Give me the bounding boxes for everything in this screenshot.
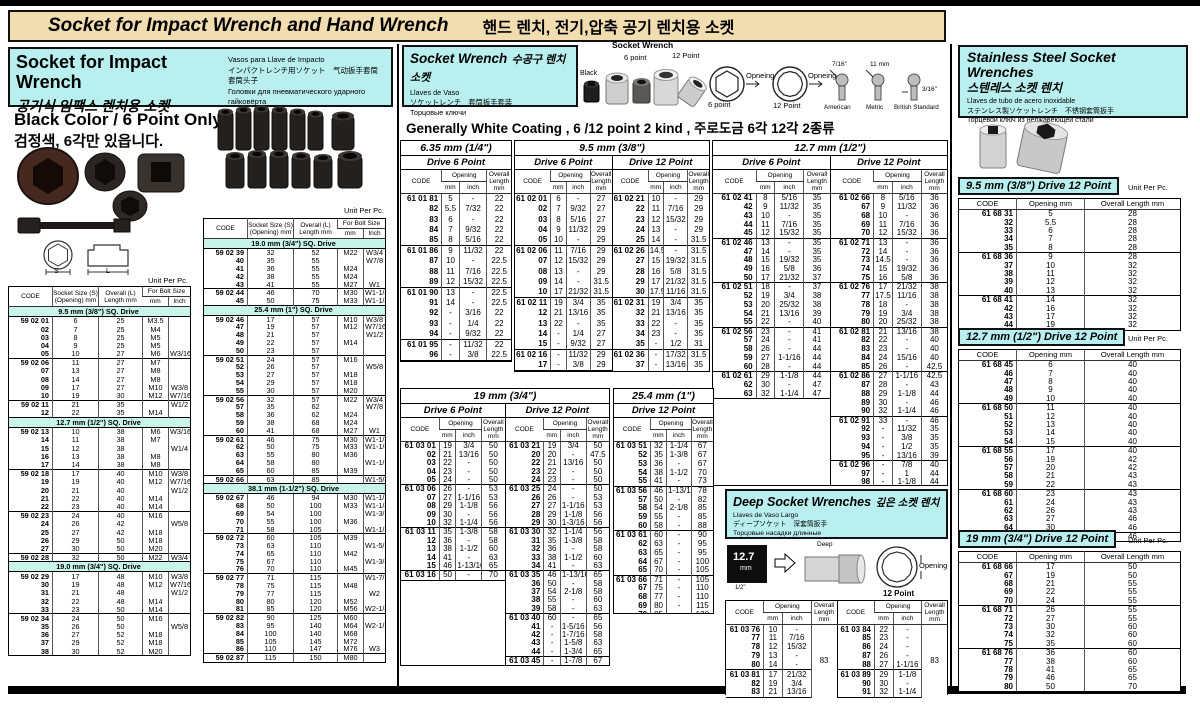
divider-middle-right (950, 44, 952, 686)
cell: 59 02 82 (204, 614, 248, 622)
cell: - (648, 360, 663, 370)
table-row: 59 02 8290125M60 (204, 614, 386, 622)
table-row: 61 02 6685/1636 (831, 194, 948, 203)
table-row: 325.528 (959, 219, 1181, 227)
table-row: 59 02 232440M16 (9, 511, 191, 519)
cell: 43 (506, 639, 544, 647)
cell: 5/16 (566, 215, 590, 225)
cell: M76 (338, 645, 364, 653)
cell: 110 (294, 558, 338, 566)
cell: 61 03 76 (726, 625, 764, 634)
table-row: 10321-1/456 (401, 519, 505, 528)
table-row: 743260 (959, 631, 1181, 639)
cell: 44 (713, 221, 756, 230)
cell: 61 02 61 (713, 372, 756, 381)
cell: 22 (551, 319, 566, 329)
cell: 34 (959, 235, 1017, 243)
cell: 15/32 (566, 256, 590, 266)
cell: 61 03 56 (614, 486, 651, 495)
cell: 22.5 (487, 298, 511, 308)
cell: 73 (691, 477, 713, 486)
cell: - (666, 558, 691, 567)
cell: 40 (1085, 395, 1181, 404)
cell: 59 (713, 354, 756, 363)
cell: 9 (551, 225, 566, 235)
table-row: 0914-31.5 (515, 277, 612, 287)
cell: W1-7/8 (364, 574, 386, 582)
cell: 58 (248, 526, 294, 534)
table-row: 352650W5/8 (9, 622, 191, 630)
cell: 15/32 (664, 215, 688, 225)
cell: 52 (99, 631, 143, 639)
cell: 30 (874, 398, 893, 407)
cell: 97 (831, 470, 874, 479)
cell: 12 (648, 215, 663, 225)
cell: 45 (713, 229, 756, 238)
cell (338, 542, 364, 550)
cell: 22 (487, 235, 511, 245)
art-316-label: 3/16" (922, 86, 937, 93)
unit-per-pc-left1: Unit Per Pc. (120, 276, 188, 285)
cell: 38 (921, 310, 947, 319)
cell: 35 (804, 212, 830, 221)
cell: 84 (401, 225, 442, 235)
cell: 13 (401, 545, 439, 553)
cell: 11/32 (566, 350, 590, 360)
cell: 15/32 (892, 229, 921, 238)
cell: 38 (921, 327, 947, 336)
cell: 29 (688, 204, 709, 214)
cell: 21 (756, 310, 775, 319)
impact-table-1: CODESocket Size (S) (Opening) mmOverall … (8, 286, 191, 656)
cell: 22 (439, 459, 456, 467)
unit-per-pc-ssA: Unit Per Pc. (1128, 183, 1168, 192)
cell: 36 (248, 411, 294, 419)
deep-frac-label: 1/2" (735, 585, 745, 591)
cell: M24 (338, 419, 364, 427)
cell: 110 (691, 584, 713, 593)
cell: 68 (959, 580, 1017, 588)
cell: 88 (401, 267, 442, 277)
cell: 1-13/16 (456, 562, 482, 571)
cell: 34 (613, 329, 649, 339)
table-row: 95-13/1639 (831, 452, 948, 461)
cell: 78 (831, 301, 874, 310)
cell: - (775, 283, 804, 292)
cell: 50 (248, 297, 294, 305)
cell: 32 (959, 219, 1017, 227)
cell: W1-1/8 (364, 435, 386, 443)
cell: 15 (9, 444, 53, 452)
cell: 57 (294, 355, 338, 363)
cell: 6 (1017, 227, 1085, 235)
cell: 44 (921, 390, 947, 399)
cell: - (775, 318, 804, 327)
cell: 35 (248, 403, 294, 411)
cell: 1-1/8 (893, 670, 922, 679)
cell: 37 (804, 274, 830, 283)
cell: 41 (248, 427, 294, 435)
cell: 56 (482, 511, 505, 519)
cell: 59 02 18 (9, 469, 53, 477)
cell: 61 03 51 (614, 442, 651, 451)
cell: 37 (506, 588, 544, 596)
cell: 61 02 36 (613, 350, 649, 360)
table-row: 61 03 35461-13/1665 (506, 571, 610, 580)
cell: 23 (1017, 490, 1085, 499)
cell: 9/32 (566, 204, 590, 214)
table-row: 2322-50 (506, 468, 610, 476)
table-12-7mm: 12.7 mm (1/2") Drive 6 Point CODEOpening… (712, 140, 948, 486)
table-row: 59 02 393252M22W3/4 (204, 249, 386, 257)
table-row: 52193/438 (713, 292, 830, 301)
cell: 58 (204, 411, 248, 419)
cell: M10 (338, 315, 364, 323)
cell: 64 (204, 459, 248, 467)
table-row: 542113/1639 (713, 310, 830, 319)
section-row-label: 12.7 mm (1/2") SQ. Drive (9, 417, 191, 427)
cell: 61 03 01 (401, 442, 439, 451)
cell: 86 (204, 645, 248, 653)
cell: M16 (143, 614, 169, 622)
cell: 59 02 01 (9, 317, 53, 325)
cell: 42 (99, 528, 143, 536)
cell: 50 (1017, 683, 1085, 692)
cell: W7/8 (364, 257, 386, 265)
table-row: 13381-1/260 (401, 545, 505, 553)
cell: W1/2 (364, 331, 386, 339)
cell (143, 589, 169, 597)
cell: 80 (959, 683, 1017, 692)
cell: 15/32 (775, 229, 804, 238)
cell: 36 (921, 274, 947, 283)
cell: 50 (248, 443, 294, 451)
cell: 1-1/16 (893, 661, 922, 670)
cell (169, 453, 191, 461)
cell: M12 (143, 478, 169, 486)
cell: 19 (764, 679, 783, 688)
cell: 29 (590, 350, 611, 360)
table-row: 41-1-5/1656 (506, 623, 610, 631)
cell: 18 (756, 283, 775, 292)
cell: 33 (506, 554, 544, 562)
cell: 61 03 11 (401, 528, 439, 537)
cell: 58 (651, 522, 667, 531)
cell: 38 (959, 270, 1017, 278)
cell: M60 (338, 614, 364, 622)
drive-12-point-label: Drive 12 Point (831, 156, 948, 170)
impact-sub-es: Vasos para Llave de Impacto (228, 55, 385, 66)
table-row: 3441-63 (506, 562, 610, 571)
cell: W7/8 (364, 403, 386, 411)
table-12-7mm-6pt: CODEOpeningOverall Length mmmminch 61 02… (713, 170, 830, 399)
cell: 11/32 (459, 246, 487, 256)
ss-table-b-title: 12.7 mm (1/2") Drive 12 Point (958, 328, 1125, 346)
cell: - (666, 522, 691, 531)
table-row: 231215/3229 (613, 215, 710, 225)
cell: 40 (204, 257, 248, 265)
cell: 41 (204, 265, 248, 273)
cell: - (666, 540, 691, 549)
cell: 31.5 (688, 256, 709, 266)
cell (169, 511, 191, 519)
cell: 35 (921, 443, 947, 452)
cell: 55 (1085, 615, 1181, 623)
cell: W1 (364, 281, 386, 289)
cell: 13/16 (892, 452, 921, 461)
cell: 62 (959, 507, 1017, 515)
table-row: 671950 (959, 572, 1181, 580)
cell: 61 68 60 (959, 490, 1017, 499)
cell: 63 (248, 475, 294, 484)
table-row: 52351-3/867 (614, 451, 713, 460)
table-row: 61 02 9133-46 (831, 416, 948, 425)
cell: 65 (1085, 666, 1181, 674)
cell: 3/4 (775, 292, 804, 301)
cell: - (560, 494, 586, 502)
table-row: 421632 (959, 305, 1181, 313)
cell: 13 (764, 652, 783, 661)
cell: 21 (439, 451, 456, 459)
unit-per-pc-ssC: Unit Per Pc. (1128, 536, 1168, 545)
cell: 71 (651, 575, 667, 584)
table-row: 61 02 2110-29 (613, 194, 710, 204)
cell: 40 (1085, 378, 1181, 386)
table-row: 7055100M36 (204, 518, 386, 526)
cell: - (775, 212, 804, 221)
cell: 35 (688, 308, 709, 318)
cell: 84 (204, 630, 248, 638)
cell: - (782, 625, 811, 634)
cell: M18 (338, 379, 364, 387)
cell: 48 (204, 331, 248, 339)
cell: 19 (1017, 572, 1085, 580)
cell: 11/16 (892, 292, 921, 301)
cell: 24 (439, 476, 456, 485)
ss-title-ko: 스텐레스 소켓 렌치 (967, 79, 1179, 96)
cell (338, 475, 364, 484)
cell: 1-3/8 (560, 537, 586, 545)
cell: 19/32 (664, 256, 688, 266)
cell (364, 518, 386, 526)
cell: 07 (515, 256, 551, 266)
cell: 5 (442, 194, 460, 204)
table-row: 61 03 1650-70 (401, 571, 505, 580)
table-row: 61 03 4060-65 (506, 614, 610, 623)
section-row-label: 38.1 mm (1-1/2") SQ. Drive (204, 484, 386, 494)
cell: 05 (9, 350, 53, 358)
cell: 75 (651, 584, 667, 593)
cell: 59 02 51 (204, 355, 248, 363)
cell: 28 (1085, 210, 1181, 219)
table-row: 455075M33W1-1/4 (204, 297, 386, 305)
deep-table-right: CODEOpeningOverall Length mmmminch 61 03… (837, 601, 948, 698)
table-row: 47840 (959, 378, 1181, 386)
table-row: 7314.5-36 (831, 256, 948, 265)
generally-coating-line: Generally White Coating , 6 /12 point 2 … (406, 117, 835, 137)
table-row: 645880W1-1/2 (204, 459, 386, 467)
cell: 23 (53, 503, 99, 511)
cell: 5/16 (775, 194, 804, 203)
cell: 59 02 61 (204, 435, 248, 443)
cell: 105 (294, 534, 338, 542)
cell: - (775, 247, 804, 256)
cell: 42 (99, 520, 143, 528)
cell: 35 (688, 371, 709, 372)
cell: 48 (99, 572, 143, 580)
cell: 12 (764, 643, 783, 652)
cell: M24 (338, 265, 364, 273)
cell: 29 (874, 670, 893, 679)
cell: 29 (590, 256, 611, 266)
table-row: 28165/831.5 (613, 267, 710, 277)
cell: 15 (515, 339, 551, 349)
cell (364, 347, 386, 355)
cell: 16 (756, 265, 775, 274)
cell: 27 (99, 384, 143, 392)
cell (364, 654, 386, 663)
cell: 1-1/8 (892, 390, 921, 399)
cell: 12 (874, 229, 893, 238)
cell: 61 02 11 (515, 298, 551, 308)
cell: M22 (338, 395, 364, 403)
cell: 55 (544, 596, 561, 604)
cell: 145 (294, 638, 338, 646)
cell: 54 (614, 469, 651, 478)
table-9-5mm-12pt: CODEOpeningOverall Length mmmminch 61 02… (613, 170, 710, 372)
cell (169, 409, 191, 417)
cell: 75 (248, 582, 294, 590)
cell: 31.5 (688, 287, 709, 297)
cell: 7 (551, 204, 566, 214)
deep-12point-label: 12 Point (883, 589, 914, 598)
cell: 61 02 06 (515, 246, 551, 256)
cell: 85 (401, 235, 442, 245)
cell: - (648, 339, 663, 349)
cell: 28 (1085, 227, 1181, 235)
dim-s-label: S (54, 268, 59, 275)
cell: 10 (53, 350, 99, 358)
cell: 50 (1085, 572, 1181, 580)
cell: 48 (99, 597, 143, 605)
cell: W1/2 (169, 589, 191, 597)
cell: 13/16 (456, 451, 482, 459)
ss-table-a: CODEOpening mmOverall Length mm 61 68 31… (958, 198, 1181, 331)
cell: 32 (1085, 296, 1181, 305)
cell: 63 (586, 562, 609, 571)
cell: 25 (613, 235, 649, 245)
cell: 61 68 50 (959, 404, 1017, 413)
cell: 20 (9, 486, 53, 494)
cell: - (442, 319, 460, 329)
cell: 19 (53, 580, 99, 588)
table-row: 7214-36 (831, 247, 948, 256)
table-row: 391232 (959, 278, 1181, 286)
table-row: 802025/3238 (831, 318, 948, 327)
cell: 59 02 34 (9, 614, 53, 622)
table-row: 63321-1/447 (713, 390, 830, 399)
cell: 5.5 (1017, 219, 1085, 227)
cell: 115 (691, 602, 713, 611)
cell: 38 (544, 554, 561, 562)
cell (338, 459, 364, 467)
cell: M10 (143, 572, 169, 580)
cell: 9 (1017, 386, 1085, 394)
table-row: 0279/3227 (515, 204, 612, 214)
cell: 22.5 (487, 287, 511, 297)
cell: 07 (401, 494, 439, 502)
cell: 5/8 (892, 274, 921, 283)
cell: 35 (99, 409, 143, 417)
cell: 82 (401, 204, 442, 214)
table-row: 93-3/835 (831, 434, 948, 443)
cell: 47 (804, 390, 830, 399)
cell: M16 (338, 355, 364, 363)
art-716-label: 7/16" (832, 61, 847, 68)
cell: 72 (959, 615, 1017, 623)
cell: 38 (921, 318, 947, 327)
cell: 44 (804, 372, 830, 381)
table-row: 88291-1/844 (831, 390, 948, 399)
socket-stack-photo (212, 104, 384, 192)
cell: M6 (143, 427, 169, 435)
cell: 77 (248, 590, 294, 598)
table-row: 656085M39 (204, 467, 386, 475)
cell: M14 (143, 597, 169, 605)
cell: 61 03 40 (506, 614, 544, 623)
cell: 64 (614, 558, 651, 567)
cell: M12 (143, 580, 169, 588)
cell: 21/32 (892, 283, 921, 292)
cell: W1-1/2 (364, 526, 386, 534)
cell: 60 (586, 596, 609, 604)
table-row: 22117/1629 (613, 204, 710, 214)
table-row: 542957M18 (204, 379, 386, 387)
cell: 41 (651, 477, 667, 486)
cell: 61 68 55 (959, 447, 1017, 456)
cell: 17 (9, 461, 53, 469)
cell: 44 (804, 345, 830, 354)
cell: 36 (921, 203, 947, 212)
cell: 14.5 (874, 256, 893, 265)
cell: 63 (204, 451, 248, 459)
cell: 61 03 21 (506, 442, 544, 451)
cell: - (666, 584, 691, 593)
cell: 50 (713, 274, 756, 283)
cell: 53 (959, 429, 1017, 437)
cell: 7 (1017, 235, 1085, 243)
cell: 73 (831, 256, 874, 265)
cell: 26 (439, 485, 456, 494)
cell: 40 (99, 486, 143, 494)
cell: 31 (9, 589, 53, 597)
cell: 26 (506, 494, 544, 502)
cell: 50 (586, 459, 609, 467)
cell: 21/32 (566, 287, 590, 297)
cell: - (892, 398, 921, 407)
table-row: 61 68 661750 (959, 563, 1181, 572)
cell: M8 (143, 461, 169, 469)
cell: - (442, 329, 460, 339)
cell: 115 (294, 582, 338, 590)
cell (143, 486, 169, 494)
cell: 16 (1017, 305, 1085, 313)
cell: 1/2 (664, 339, 688, 349)
cell: 15/32 (459, 277, 487, 287)
cell: 67 (614, 584, 651, 593)
cell: 10 (53, 427, 99, 435)
cell: 24 (53, 614, 99, 622)
